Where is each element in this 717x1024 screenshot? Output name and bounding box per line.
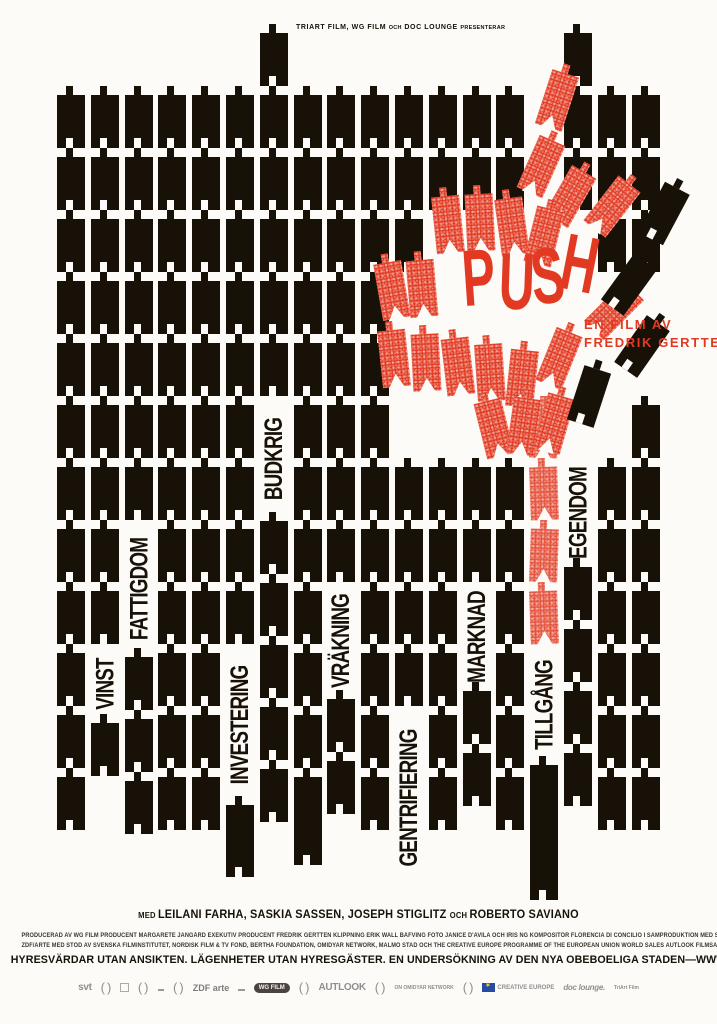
director-credit-line2: FREDRIK GERTTEN	[584, 334, 717, 352]
grid-block	[57, 95, 85, 148]
grid-block	[226, 529, 254, 582]
grid-block	[395, 529, 423, 582]
grid-column	[361, 95, 389, 909]
grid-block	[395, 467, 423, 520]
vertical-word: MARKNAD	[463, 591, 491, 682]
logo-label: CREATIVE EUROPE	[497, 985, 554, 991]
grid-block-red	[529, 529, 559, 583]
grid-block	[294, 219, 322, 272]
grid-block	[125, 157, 153, 210]
grid-block	[632, 591, 660, 644]
cast-name-part: LEILANI FARHA, SASKIA SASSEN, JOSEPH STI…	[158, 909, 450, 921]
grid-block	[57, 529, 85, 582]
grid-block	[260, 157, 288, 210]
grid-block	[91, 281, 119, 334]
grid-block	[57, 467, 85, 520]
grid-block	[496, 653, 524, 706]
grid-block	[598, 529, 626, 582]
grid-block	[158, 715, 186, 768]
title-letter: P	[459, 237, 498, 319]
grid-column: VRÄKNING	[327, 95, 355, 909]
logo-zdf-arte: ZDF arte	[193, 983, 230, 993]
grid-block	[429, 777, 457, 830]
grid-block	[361, 653, 389, 706]
grid-block	[260, 33, 288, 86]
grid-block	[260, 219, 288, 272]
grid-block	[327, 157, 355, 210]
grid-block	[598, 777, 626, 830]
vertical-word: VRÄKNING	[327, 591, 355, 690]
logo-strip: svt ZDF arte WG FILMAUTLOOKON OMIDYAR NE…	[0, 980, 717, 995]
grid-block	[192, 777, 220, 830]
grid-block	[327, 95, 355, 148]
logo-box	[120, 983, 129, 992]
grid-block	[226, 95, 254, 148]
logo-on-omidyar-network: ON OMIDYAR NETWORK	[394, 985, 453, 991]
grid-block	[496, 467, 524, 520]
grid-block	[260, 769, 288, 822]
grid-column: GENTRIFIERING	[395, 95, 423, 909]
vertical-word-label: EGENDOM	[563, 467, 593, 559]
logo-laurel	[299, 980, 310, 995]
vertical-word-label: TILLGÅNG	[529, 660, 559, 750]
vertical-word-label: GENTRIFIERING	[394, 729, 424, 866]
grid-block	[361, 591, 389, 644]
grid-block	[260, 707, 288, 760]
grid-block	[463, 691, 491, 744]
grid-block	[294, 157, 322, 210]
grid-block	[496, 95, 524, 148]
grid-block	[294, 343, 322, 396]
grid-block	[395, 95, 423, 148]
grid-block	[327, 281, 355, 334]
cast-name-part: ROBERTO SAVIANO	[470, 909, 579, 921]
vertical-word-label: VRÄKNING	[327, 593, 357, 687]
grid-block	[125, 781, 153, 834]
grid-block	[632, 467, 660, 520]
block-grid: VINSTFATTIGDOMINVESTERINGBUDKRIGVRÄKNING…	[57, 0, 665, 909]
grid-block	[125, 405, 153, 458]
grid-block	[294, 281, 322, 334]
grid-block	[632, 405, 660, 458]
vertical-word: TILLGÅNG	[530, 653, 558, 756]
grid-block	[226, 219, 254, 272]
grid-block	[632, 715, 660, 768]
logo-wg-film: WG FILM	[254, 983, 290, 993]
grid-block	[91, 467, 119, 520]
grid-block	[57, 777, 85, 830]
grid-block	[158, 281, 186, 334]
grid-column	[192, 95, 220, 909]
grid-block	[192, 653, 220, 706]
grid-block	[57, 219, 85, 272]
grid-block	[632, 95, 660, 148]
grid-block	[226, 405, 254, 458]
grid-block	[125, 657, 153, 710]
grid-block	[598, 653, 626, 706]
grid-block	[158, 777, 186, 830]
grid-block	[91, 723, 119, 776]
grid-block	[598, 467, 626, 520]
grid-block	[57, 591, 85, 644]
grid-block	[226, 343, 254, 396]
grid-block	[158, 343, 186, 396]
vertical-word-label: BUDKRIG	[259, 417, 289, 499]
grid-block	[260, 521, 288, 574]
grid-block	[327, 467, 355, 520]
credits-small-line1: PRODUCERAD AV WG FILM PRODUCENT MARGARET…	[22, 933, 696, 939]
grid-block	[91, 219, 119, 272]
logo-label: WG FILM	[254, 983, 290, 993]
grid-block	[192, 157, 220, 210]
grid-block	[429, 95, 457, 148]
grid-block	[395, 591, 423, 644]
tagline-url-line: HYRESVÄRDAR UTAN ANSIKTEN. LÄGENHETER UT…	[11, 954, 706, 966]
grid-block	[429, 715, 457, 768]
grid-block	[564, 691, 592, 744]
grid-column	[294, 95, 322, 909]
grid-block	[260, 343, 288, 396]
grid-block	[463, 467, 491, 520]
grid-block	[226, 281, 254, 334]
grid-block	[361, 405, 389, 458]
grid-column: VINST	[91, 95, 119, 909]
logo-laurel	[138, 980, 149, 995]
grid-block	[294, 653, 322, 706]
grid-block	[361, 467, 389, 520]
grid-block	[361, 95, 389, 148]
grid-block	[158, 529, 186, 582]
grid-block	[395, 653, 423, 706]
grid-block	[226, 157, 254, 210]
grid-block	[496, 529, 524, 582]
logo-label	[158, 984, 165, 991]
vertical-word: FATTIGDOM	[125, 529, 153, 648]
grid-block	[158, 219, 186, 272]
grid-block	[463, 753, 491, 806]
grid-block-tall	[530, 765, 558, 900]
tilted-block-red	[406, 259, 439, 318]
grid-block	[192, 467, 220, 520]
grid-block	[91, 343, 119, 396]
grid-column	[158, 95, 186, 909]
grid-column: FATTIGDOM	[125, 95, 153, 909]
grid-block	[260, 95, 288, 148]
logo-laurel	[173, 980, 184, 995]
grid-block	[125, 343, 153, 396]
tilted-block-red	[377, 329, 411, 389]
grid-block	[496, 591, 524, 644]
grid-block	[294, 405, 322, 458]
grid-block	[260, 281, 288, 334]
grid-block	[125, 281, 153, 334]
director-credit-line1: EN FILM AV	[584, 316, 717, 334]
logo-triart-film: TriArt Film	[614, 985, 639, 991]
vertical-word-label: VINST	[90, 658, 120, 709]
vertical-word-label: INVESTERING	[225, 665, 255, 784]
grid-block	[361, 157, 389, 210]
grid-block	[125, 719, 153, 772]
grid-block	[192, 95, 220, 148]
grid-block	[327, 529, 355, 582]
vertical-word: EGENDOM	[564, 467, 592, 558]
logo-mark	[158, 984, 165, 991]
cast-name-part: OCH	[450, 911, 470, 920]
grid-block	[429, 653, 457, 706]
cast-names-line: MED LEILANI FARHA, SASKIA SASSEN, JOSEPH…	[18, 909, 699, 921]
grid-block	[57, 157, 85, 210]
logo-laurel	[101, 980, 112, 995]
vertical-word-label: MARKNAD	[462, 591, 492, 683]
grid-block	[192, 343, 220, 396]
grid-block	[91, 529, 119, 582]
grid-block	[294, 95, 322, 148]
grid-block-tall	[294, 777, 322, 865]
grid-block	[496, 715, 524, 768]
grid-block	[192, 219, 220, 272]
grid-block	[57, 715, 85, 768]
grid-block	[294, 591, 322, 644]
grid-block-red	[529, 467, 559, 521]
grid-block	[598, 95, 626, 148]
cast-name-part: MED	[138, 911, 158, 920]
grid-block	[564, 567, 592, 620]
grid-block	[463, 95, 491, 148]
grid-block	[260, 583, 288, 636]
grid-column: BUDKRIG	[260, 33, 288, 909]
grid-block	[361, 715, 389, 768]
grid-block	[429, 591, 457, 644]
grid-block	[598, 591, 626, 644]
logo-autlook: AUTLOOK	[318, 982, 365, 993]
grid-block	[192, 405, 220, 458]
grid-block	[598, 715, 626, 768]
vertical-word-label: FATTIGDOM	[124, 537, 154, 639]
grid-block	[429, 529, 457, 582]
grid-block	[632, 777, 660, 830]
grid-block	[192, 281, 220, 334]
grid-block	[226, 591, 254, 644]
grid-block	[57, 281, 85, 334]
grid-block	[91, 157, 119, 210]
grid-column	[57, 95, 85, 909]
grid-block	[125, 467, 153, 520]
credits-small-line2: ZDF/ARTE MED STÖD AV SVENSKA FILMINSTITU…	[22, 943, 696, 949]
grid-block	[91, 405, 119, 458]
vertical-word: GENTRIFIERING	[395, 715, 423, 881]
director-credit: EN FILM AV FREDRIK GERTTEN	[584, 316, 717, 352]
grid-block	[192, 529, 220, 582]
logo-svt: svt	[78, 982, 92, 993]
grid-block	[327, 219, 355, 272]
grid-block	[564, 629, 592, 682]
logo-creative-europe: CREATIVE EUROPE	[482, 983, 554, 992]
grid-block	[361, 777, 389, 830]
grid-block	[564, 753, 592, 806]
grid-block	[632, 653, 660, 706]
grid-block	[496, 777, 524, 830]
logo-label	[120, 983, 129, 992]
grid-block	[327, 343, 355, 396]
grid-block	[294, 715, 322, 768]
vertical-word: BUDKRIG	[260, 405, 288, 512]
eu-flag-icon	[482, 983, 495, 992]
grid-block	[125, 219, 153, 272]
grid-block-tall	[226, 805, 254, 877]
grid-block	[226, 467, 254, 520]
grid-column: INVESTERING	[226, 95, 254, 909]
grid-block	[158, 405, 186, 458]
grid-block	[57, 405, 85, 458]
grid-block-red	[529, 591, 559, 645]
grid-block	[327, 761, 355, 814]
grid-block	[294, 529, 322, 582]
logo-laurel	[375, 980, 386, 995]
film-poster: TRIART FILM, WG FILM OCH DOC LOUNGE PRES…	[0, 0, 717, 1024]
grid-block	[91, 591, 119, 644]
vertical-word: VINST	[91, 653, 119, 714]
grid-block	[158, 591, 186, 644]
grid-block	[192, 715, 220, 768]
grid-block	[57, 653, 85, 706]
grid-block	[632, 529, 660, 582]
grid-block	[158, 95, 186, 148]
grid-block	[158, 467, 186, 520]
grid-block	[158, 157, 186, 210]
grid-block	[158, 653, 186, 706]
grid-block	[361, 529, 389, 582]
grid-block	[91, 95, 119, 148]
tilted-block-red	[411, 333, 442, 391]
grid-block	[57, 343, 85, 396]
logo-mark	[238, 984, 245, 991]
grid-block	[192, 591, 220, 644]
logo-laurel	[463, 980, 474, 995]
grid-block	[429, 467, 457, 520]
grid-block	[125, 95, 153, 148]
tilted-block-red	[474, 343, 506, 402]
grid-block	[294, 467, 322, 520]
grid-block	[260, 645, 288, 698]
grid-block	[327, 699, 355, 752]
grid-block	[463, 529, 491, 582]
grid-block	[327, 405, 355, 458]
grid-block	[395, 157, 423, 210]
logo-label	[238, 984, 245, 991]
vertical-word: INVESTERING	[226, 653, 254, 796]
logo-doc-lounge-: doc lounge.	[563, 983, 605, 992]
